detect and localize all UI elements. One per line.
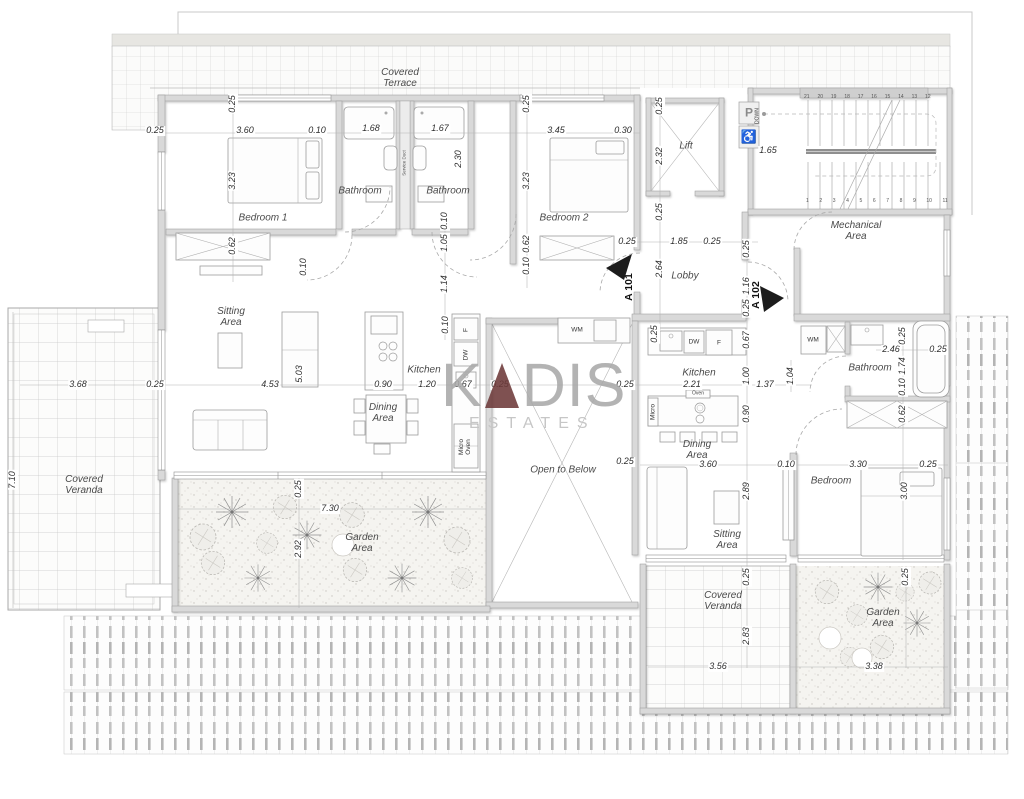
- dim-label: 3.38: [864, 662, 884, 672]
- room-label-covered-veranda-left: Covered Veranda: [55, 474, 113, 496]
- dim-label: 0.10: [440, 211, 450, 231]
- room-label-garden-area-left: Garden Area: [340, 532, 384, 554]
- oven-label-2: Oven: [692, 391, 704, 397]
- dim-label: 0.25: [522, 94, 532, 114]
- dishwasher-label-2: DW: [689, 338, 700, 345]
- dim-label: 0.10: [522, 256, 532, 276]
- dim-label: 0.25: [650, 324, 660, 344]
- dim-label: 7.30: [320, 504, 340, 514]
- room-label-bathroom-2: Bathroom: [426, 186, 469, 197]
- dim-label: 2.83: [742, 626, 752, 646]
- unit-label-a101: A 101: [624, 273, 636, 301]
- dim-label: 0.25: [928, 345, 948, 355]
- room-label-mechanical-area: Mechanical Area: [827, 220, 885, 242]
- dim-label: 0.10: [307, 126, 327, 136]
- fridge-label-2: F: [717, 339, 721, 346]
- kadis-watermark: K DIS: [441, 362, 626, 408]
- watermark-a-triangle-icon: [485, 363, 519, 408]
- dim-label: 0.25: [655, 202, 665, 222]
- pergola-louvers-right: [956, 316, 1008, 688]
- dim-label: 0.62: [228, 236, 238, 256]
- room-label-kitchen-2: Kitchen: [682, 368, 715, 379]
- wheelchair-icon: ♿: [741, 130, 757, 144]
- dim-label: 7.10: [8, 470, 18, 490]
- room-label-dining-area-1: Dining Area: [361, 402, 405, 424]
- room-label-dining-area-2: Dining Area: [675, 439, 719, 461]
- dim-label: 1.14: [440, 274, 450, 294]
- dim-label: 4.53: [260, 380, 280, 390]
- dim-label: 1.05: [440, 233, 450, 253]
- dim-label: 1.67: [430, 124, 450, 134]
- covered-veranda-right: [646, 566, 790, 710]
- room-label-open-to-below: Open to Below: [530, 465, 596, 476]
- dim-label: 0.25: [655, 96, 665, 116]
- parking-sign-icon: P: [745, 106, 753, 119]
- dim-label: 2.21: [682, 380, 702, 390]
- unit-label-a102: A 102: [751, 281, 763, 309]
- dim-label: 1.74: [898, 356, 908, 376]
- room-label-bedroom-2: Bedroom 2: [540, 213, 589, 224]
- fridge-label-1: F: [462, 328, 469, 332]
- dim-label: 0.10: [441, 315, 451, 335]
- stair-step-numbers-upper: 21 20 19 18 17 16 15 14 13 12: [804, 94, 931, 100]
- dim-label: 0.25: [702, 237, 722, 247]
- dim-label: 2.89: [742, 481, 752, 501]
- stair-step-numbers-lower: 1 2 3 4 5 6 7 8 9 10 11: [806, 198, 948, 204]
- dim-label: 0.25: [228, 94, 238, 114]
- room-label-sitting-area-2: Sitting Area: [705, 529, 749, 551]
- dim-label: 0.25: [145, 126, 165, 136]
- room-label-garden-area-right: Garden Area: [861, 607, 905, 629]
- room-label-bathroom-3: Bathroom: [848, 363, 891, 374]
- dim-label: 3.60: [235, 126, 255, 136]
- dim-label: 2.30: [454, 149, 464, 169]
- dim-label: 0.25: [742, 298, 752, 318]
- dim-label: 1.20: [417, 380, 437, 390]
- garden-area-right: [796, 566, 944, 710]
- washing-machine-label-1: WM: [571, 326, 583, 333]
- dim-label: 3.23: [228, 171, 238, 191]
- washing-machine-label-2: WM: [807, 336, 819, 343]
- dim-label: 1.00: [742, 366, 752, 386]
- floor-plan-page: .w{fill:#d9d9d9;stroke:#979797;stroke-wi…: [0, 0, 1024, 799]
- dim-label: 0.25: [294, 479, 304, 499]
- dim-label: 1.16: [742, 276, 752, 296]
- dim-label: 0.25: [918, 460, 938, 470]
- watermark-letter-k: K: [441, 362, 483, 408]
- covered-veranda-left: [8, 308, 174, 610]
- dim-label: 3.60: [698, 460, 718, 470]
- room-label-bathroom-1: Bathroom: [338, 186, 381, 197]
- dim-label: 3.00: [900, 481, 910, 501]
- dim-label: 1.85: [669, 237, 689, 247]
- dim-label: 2.32: [655, 146, 665, 166]
- dim-label: 0.25: [898, 326, 908, 346]
- room-label-covered-terrace: Covered Terrace: [371, 67, 429, 89]
- micro-oven-label-1: Micro Oven: [459, 434, 473, 460]
- dim-label: 0.90: [373, 380, 393, 390]
- dim-label: 5.03: [295, 364, 305, 384]
- room-label-kitchen-1: Kitchen: [407, 365, 440, 376]
- dim-label: 0.25: [742, 239, 752, 259]
- dim-label: 2.46: [881, 345, 901, 355]
- dim-label: 3.56: [708, 662, 728, 672]
- stairs-down-label: DOWN: [756, 116, 761, 124]
- garden-area-left: [178, 478, 486, 608]
- dim-label: 0.25: [615, 457, 635, 467]
- room-label-lift: Lift: [679, 141, 692, 152]
- dim-label: 2.64: [655, 259, 665, 279]
- dim-label: 3.68: [68, 380, 88, 390]
- room-label-lobby: Lobby: [671, 271, 698, 282]
- dim-label: 0.62: [898, 404, 908, 424]
- dim-label: 0.90: [742, 404, 752, 424]
- dim-label: 0.25: [901, 567, 911, 587]
- watermark-estates-text: ESTATES: [469, 415, 596, 433]
- room-label-bedroom-3: Bedroom: [811, 476, 852, 487]
- dim-label: 0.67: [742, 330, 752, 350]
- dim-label: 1.04: [786, 366, 796, 386]
- micro-label-2: Micro: [649, 404, 656, 420]
- dim-label: 0.25: [145, 380, 165, 390]
- dim-label: 1.37: [755, 380, 775, 390]
- dim-label: 3.45: [546, 126, 566, 136]
- dim-label: 1.65: [758, 146, 778, 156]
- dim-label: 1.68: [361, 124, 381, 134]
- dim-label: 3.23: [522, 171, 532, 191]
- dim-label: 3.30: [848, 460, 868, 470]
- dim-label: 0.10: [299, 257, 309, 277]
- dim-label: 0.30: [613, 126, 633, 136]
- room-label-covered-veranda-right: Covered Veranda: [694, 590, 752, 612]
- dim-label: 0.25: [742, 567, 752, 587]
- dim-label: 2.92: [294, 539, 304, 559]
- dim-label: 0.62: [522, 234, 532, 254]
- dim-label: 0.10: [776, 460, 796, 470]
- dim-label: 0.10: [898, 377, 908, 397]
- room-label-service-duct: Service Duct: [403, 150, 408, 176]
- dim-label: 0.25: [617, 237, 637, 247]
- room-label-bedroom-1: Bedroom 1: [239, 213, 288, 224]
- watermark-letters-dis: DIS: [522, 362, 627, 408]
- room-label-sitting-area-1: Sitting Area: [209, 306, 253, 328]
